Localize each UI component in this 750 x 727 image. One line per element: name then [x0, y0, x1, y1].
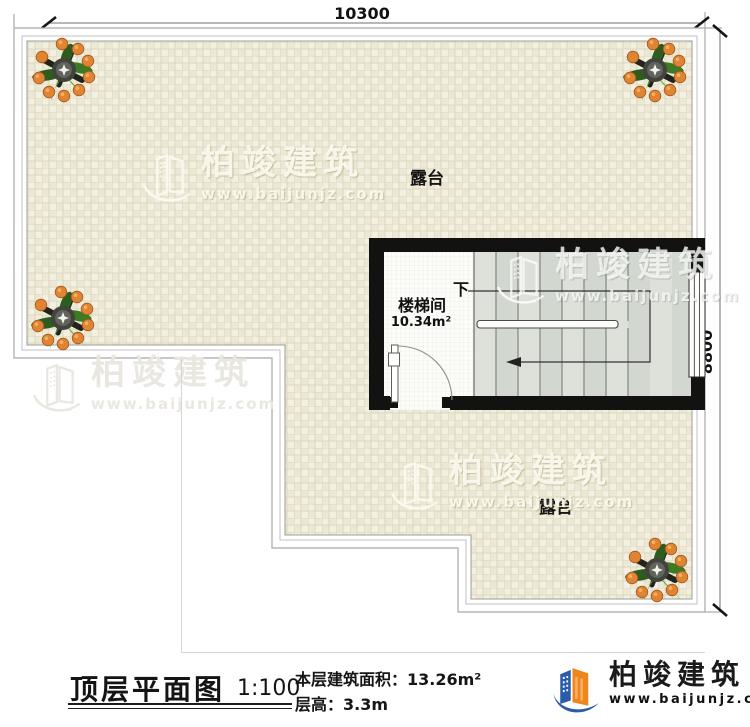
frame-line-horizontal: [181, 652, 705, 653]
dimension-top: 10300: [14, 4, 709, 28]
drawing-scale: 1:100: [237, 676, 300, 701]
frame-line-vertical: [181, 358, 182, 652]
stair-room-label: 楼梯间: [398, 296, 446, 315]
stair-room-area-label: 10.34m²: [391, 315, 451, 330]
company-logo-icon: [548, 659, 604, 721]
company-logo: 柏竣建筑 www.baijunjz.com: [548, 659, 750, 721]
floor-plan-drawing: 10300 8800: [0, 0, 750, 655]
floor-height-value: 3.3m: [343, 695, 388, 714]
door-handle: [389, 353, 400, 366]
dim-width-value: 10300: [334, 4, 390, 23]
floor-area-label: 本层建筑面积：: [295, 670, 407, 689]
floor-area-info: 本层建筑面积：13.26m²: [295, 666, 481, 690]
floor-height-info: 层高：3.3m: [295, 691, 388, 715]
company-logo-text: 柏竣建筑 www.baijunjz.com: [609, 659, 750, 707]
company-brand-url: www.baijunjz.com: [609, 692, 750, 707]
floor-height-label: 层高：: [295, 695, 343, 714]
stairwell: 下 楼梯间 10.34m²: [369, 238, 705, 410]
stair-direction-label: 下: [453, 280, 469, 299]
title-underline: [68, 703, 292, 709]
handrail: [477, 321, 618, 329]
window: [689, 272, 705, 377]
drawing-title: 顶层平面图: [70, 668, 225, 708]
terrace-label-top: 露台: [410, 168, 444, 189]
floor-plan-sheet: 10300 8800: [0, 0, 750, 727]
terrace-label-bottom: 露台: [539, 497, 573, 518]
company-brand-name: 柏竣建筑: [609, 659, 750, 691]
floor-area-value: 13.26m²: [407, 670, 481, 689]
